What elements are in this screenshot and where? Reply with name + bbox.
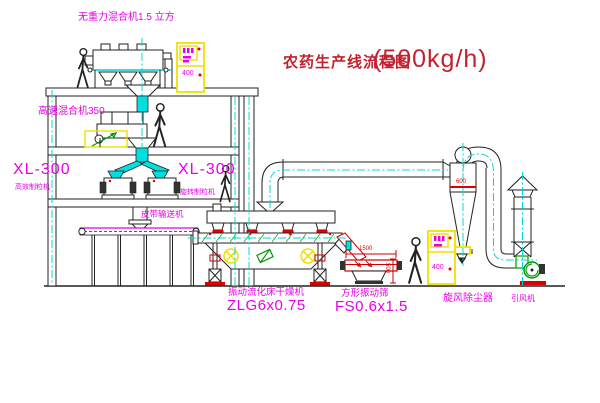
control-cabinet-right	[428, 231, 455, 284]
label-cyclone: 旋风除尘器	[443, 294, 493, 304]
induced-draft-fan	[516, 256, 546, 285]
label-high-speed-mixer: 高速混合机350	[38, 107, 105, 117]
high-speed-mixer	[85, 112, 156, 148]
cabinet-top-readout: 400	[182, 70, 194, 77]
control-cabinet-top	[177, 43, 204, 92]
dim-cyclone-600: 600	[456, 179, 466, 185]
label-granulator-right-model: XL-300	[178, 162, 236, 178]
vibrating-sieve	[337, 233, 402, 284]
dim-sieve-1500: 1500	[359, 246, 372, 252]
worker-figure-2	[154, 104, 165, 146]
label-gravity-free-mixer: 无重力混合机1.5 立方	[78, 13, 175, 23]
belt-conveyor	[79, 228, 199, 286]
exhaust-duct	[257, 159, 452, 211]
label-granulator-left-name: 高效制粒机	[15, 184, 50, 191]
cabinet-right-readout: 400	[432, 264, 444, 271]
label-sieve-model: FS0.6x1.5	[335, 299, 408, 314]
fluid-bed-dryer	[193, 204, 350, 286]
granulator-left	[100, 171, 136, 199]
cyclone-separator	[450, 0, 524, 268]
worker-figure-4	[409, 238, 421, 283]
label-belt-conveyor: 皮带输送机	[141, 210, 184, 219]
gravity-free-mixer	[85, 44, 172, 112]
drawing-title-capacity: (500kg/h)	[373, 47, 488, 72]
label-granulator-right-name: 旋转制粒机	[180, 189, 215, 196]
dim-sieve-500: 500	[384, 263, 390, 273]
label-granulator-left-model: XL-300	[13, 162, 71, 178]
label-dryer-model: ZLG6x0.75	[227, 298, 306, 313]
pesticide-line-flow-drawing: 农药生产线流程图 (500kg/h) 无重力混合机1.5 立方 高速混合机350…	[0, 0, 600, 403]
granulator-right	[144, 171, 180, 199]
worker-figure-1	[78, 49, 88, 88]
label-fan: 引风机	[511, 295, 535, 303]
